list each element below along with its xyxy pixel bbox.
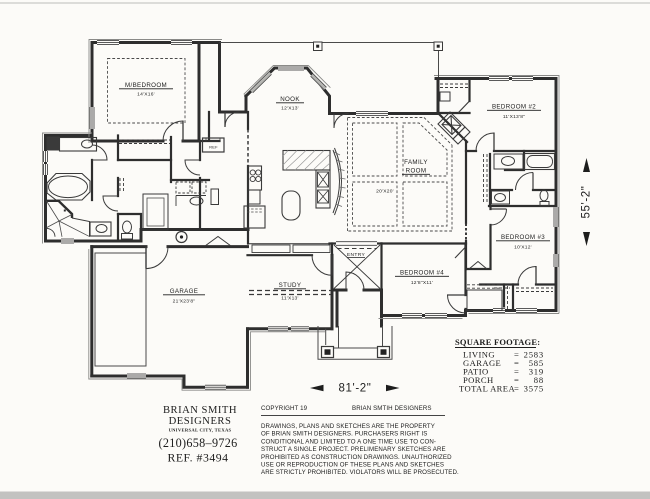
svg-text:81'-2": 81'-2"	[339, 383, 372, 395]
svg-text:SQUARE FOOTAGE:: SQUARE FOOTAGE:	[455, 337, 540, 347]
svg-text:10'X12': 10'X12'	[514, 245, 532, 251]
svg-text:BRIAN SMITH: BRIAN SMITH	[163, 405, 237, 416]
svg-text:BEDROOM #2: BEDROOM #2	[492, 104, 536, 111]
svg-text:ARE STRICTLY PROHIBITED. VIOL: ARE STRICTLY PROHIBITED. VIOLATORS WILL …	[261, 469, 459, 476]
svg-text:OF BRIAN SMITH DESIGNERS. PUR: OF BRIAN SMITH DESIGNERS. PURCHASERS RIG…	[261, 431, 427, 438]
svg-text:GARAGE: GARAGE	[170, 288, 199, 295]
svg-text:3575: 3575	[524, 384, 544, 394]
svg-text:FAMILY: FAMILY	[404, 159, 428, 166]
svg-text:STRUCT A SINGLE PROJECT. PREL: STRUCT A SINGLE PROJECT. PRELIMENARY SKE…	[261, 446, 446, 453]
svg-text:BEDROOM #4: BEDROOM #4	[400, 270, 444, 277]
svg-text:BRIAN SMTIH DESIGNERS: BRIAN SMTIH DESIGNERS	[352, 405, 432, 412]
svg-text:11'X13': 11'X13'	[281, 296, 298, 302]
svg-text:REF. #3494: REF. #3494	[167, 451, 228, 465]
svg-text:STUDY: STUDY	[279, 282, 302, 289]
svg-text:=: =	[514, 384, 519, 394]
svg-text:UNIVERSAL CITY, TEXAS: UNIVERSAL CITY, TEXAS	[169, 428, 232, 433]
svg-text:COPYRIGHT 19: COPYRIGHT 19	[261, 405, 308, 412]
svg-text:TOTAL AREA: TOTAL AREA	[459, 384, 515, 394]
svg-text:DRAWINGS, PLANS AND SKETCHES A: DRAWINGS, PLANS AND SKETCHES ARE THE PRO…	[261, 423, 435, 430]
svg-text:M/BEDROOM: M/BEDROOM	[125, 82, 167, 89]
svg-text:20'X20': 20'X20'	[376, 189, 394, 195]
svg-text:12'X13': 12'X13'	[281, 106, 299, 112]
svg-text:21'X23'8": 21'X23'8"	[173, 299, 196, 305]
svg-text:DESIGNERS: DESIGNERS	[169, 416, 232, 427]
svg-text:CONDITIONAL AND LIMITED TO A O: CONDITIONAL AND LIMITED TO A ONE TIME US…	[261, 438, 436, 445]
svg-text:14'X16': 14'X16'	[137, 92, 155, 98]
svg-text:NOOK: NOOK	[280, 96, 300, 103]
svg-text:USE OR REPRODUCTION OF THESE P: USE OR REPRODUCTION OF THESE PLANS AND S…	[261, 462, 444, 469]
svg-text:55'-2": 55'-2"	[581, 186, 593, 219]
svg-text:12'8"X11': 12'8"X11'	[411, 280, 433, 286]
svg-text:PROHIBITED AS CONSTRUCTION DRA: PROHIBITED AS CONSTRUCTION DRAWINGS. UNA…	[261, 454, 452, 461]
svg-text:11'X13'8": 11'X13'8"	[503, 114, 525, 120]
svg-text:ROOM: ROOM	[406, 168, 427, 175]
svg-text:BEDROOM #3: BEDROOM #3	[501, 234, 545, 241]
svg-text:REF: REF	[209, 145, 218, 150]
svg-text:(210)658–9726: (210)658–9726	[158, 436, 237, 450]
